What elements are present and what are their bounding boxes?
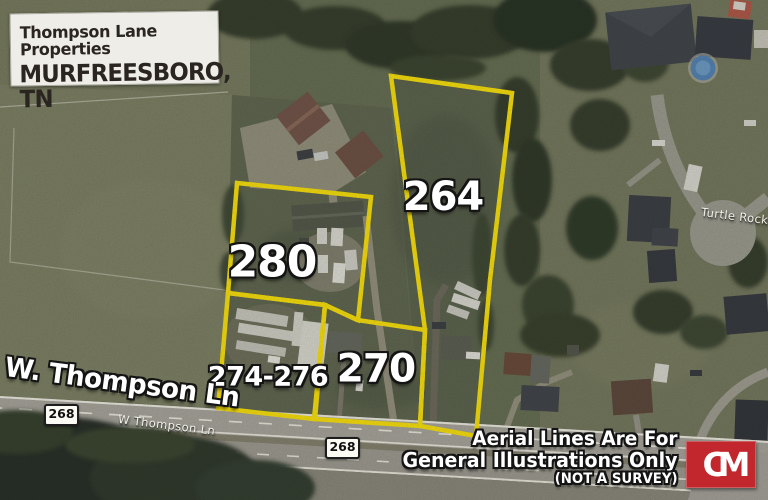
disclaimer-line-1: Aerial Lines Are For xyxy=(403,429,678,449)
disclaimer: Aerial Lines Are For General Illustratio… xyxy=(403,429,678,488)
lot-label-280: 280 xyxy=(228,237,317,288)
route-268-shield-left: 268 xyxy=(44,404,79,426)
cm-monogram-icon: CM xyxy=(686,441,756,488)
title-card: Thompson Lane Properties MURFREESBORO, T… xyxy=(10,11,220,87)
lot-label-270: 270 xyxy=(337,347,415,392)
lot-label-264: 264 xyxy=(403,174,484,220)
disclaimer-line-2: General Illustrations Only xyxy=(403,449,678,471)
logo-monogram-text: CM xyxy=(702,445,747,484)
route-268-shield-center: 268 xyxy=(325,437,360,459)
disclaimer-line-3: (NOT A SURVEY) xyxy=(403,471,678,489)
brokerage-logo: CM xyxy=(686,441,756,488)
city-line: MURFREESBORO, TN xyxy=(19,59,209,112)
title-line: Thompson Lane Properties xyxy=(20,22,213,59)
aerial-flyer: Thompson Lane Properties MURFREESBORO, T… xyxy=(0,0,768,500)
